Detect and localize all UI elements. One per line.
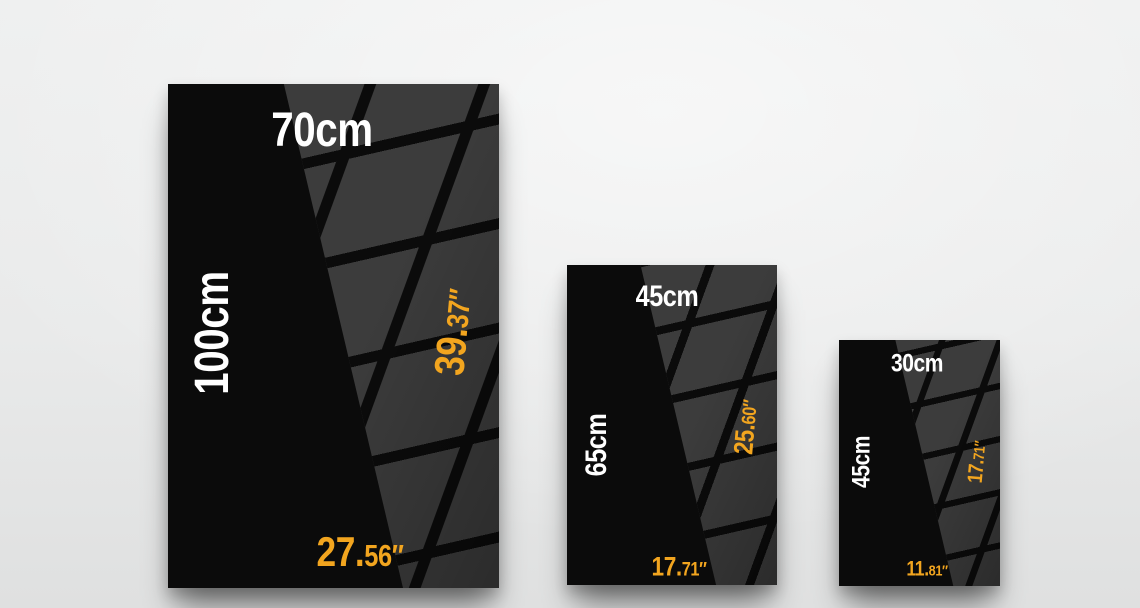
height-cm-label: 65cm [582,414,612,477]
width-inch-label: 17.71″ [651,554,706,581]
width-cm-label: 30cm [891,352,943,377]
poster-size-comparison: 70cm 100cm 39.37″ 27.56″ 45cm 65cm 25.60… [0,0,1140,608]
height-inch-small: 71″ [971,440,990,460]
width-inch-small: 71″ [682,559,707,581]
panel-45x65cm: 45cm 65cm 25.60″ 17.71″ [567,265,777,585]
width-inch-main: 27. [317,528,365,575]
height-inch-label: 39.37″ [428,287,477,377]
height-inch-small: 60″ [738,399,762,426]
height-cm-label: 100cm [189,271,237,394]
width-inch-main: 11. [906,558,928,581]
width-inch-small: 81″ [929,563,948,580]
height-cm-label: 45cm [850,436,875,488]
width-cm-label: 45cm [636,282,699,312]
height-inch-label: 17.71″ [965,440,990,484]
height-inch-small: 37″ [441,288,477,330]
height-inch-label: 25.60″ [730,398,762,455]
width-inch-label: 27.56″ [317,531,404,573]
panel-70x100cm: 70cm 100cm 39.37″ 27.56″ [168,84,499,588]
width-inch-label: 11.81″ [906,559,947,580]
height-inch-main: 39. [425,326,476,378]
panel-30x45cm: 30cm 45cm 17.71″ 11.81″ [839,340,1000,586]
height-inch-main: 17. [964,459,989,484]
width-inch-main: 17. [651,552,681,582]
width-inch-small: 56″ [364,540,403,573]
width-cm-label: 70cm [271,107,372,155]
height-inch-main: 25. [728,423,761,456]
